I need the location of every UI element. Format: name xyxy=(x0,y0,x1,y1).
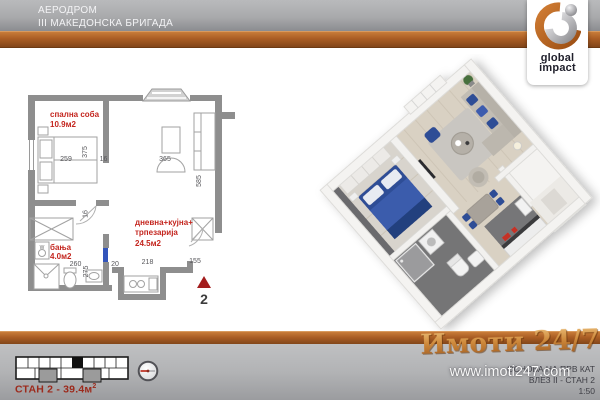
shower xyxy=(34,264,59,289)
bay-window xyxy=(143,89,190,101)
bath-door-marker xyxy=(103,248,108,262)
dim-entry-w: 155 xyxy=(189,258,201,265)
unit-label: СТАН 2 - 39.4м2 xyxy=(15,383,96,396)
imoti-watermark: Имоти 24/7 xyxy=(412,324,600,361)
bath-area: 4.0м2 xyxy=(50,252,72,261)
location-line2: III МАКЕДОНСКА БРИГАДА xyxy=(38,17,173,30)
dim-hall-t: 16 xyxy=(83,210,90,218)
dim-bedroom-w: 259 xyxy=(60,156,72,163)
dim-wall-a: 16 xyxy=(100,156,108,163)
bedroom-window xyxy=(30,140,34,170)
global-impact-logo-icon xyxy=(535,0,581,52)
dim-living-w: 365 xyxy=(159,156,171,163)
entrance-number: 2 xyxy=(200,291,208,307)
logo-card: global impact xyxy=(527,0,588,85)
unit-label-sup: 2 xyxy=(92,383,96,390)
dim-kitchen-w: 218 xyxy=(142,259,154,266)
living-name-2: трпезарија xyxy=(135,228,178,237)
orange-stripe-top xyxy=(0,31,600,48)
dim-bedroom-h: 375 xyxy=(82,146,89,158)
dim-bath-w: 260 xyxy=(70,261,82,268)
washer-label: W xyxy=(40,245,45,251)
titleblock-scale: 1:50 xyxy=(507,386,595,397)
toilet xyxy=(64,268,76,288)
wardrobe xyxy=(30,218,73,240)
compass-icon xyxy=(137,360,159,382)
building-diagram xyxy=(15,356,133,386)
website-url: www.imoti247.com xyxy=(430,364,590,380)
unit-label-text: СТАН 2 - 39.4м xyxy=(15,384,92,396)
living-name-1: дневна+кујна+ xyxy=(135,218,193,227)
highlighted-unit xyxy=(72,357,83,368)
floor-plan-2d: W спална соба 10.9м2 дневна+кујна+ т xyxy=(18,80,240,314)
sofa xyxy=(194,113,215,170)
dim-bath-door: 20 xyxy=(111,261,119,268)
location-text: АЕРОДРОМ III МАКЕДОНСКА БРИГАДА xyxy=(38,4,173,30)
dim-living-h: 585 xyxy=(196,175,203,187)
living-area: 24.5м2 xyxy=(135,239,161,248)
header-band: АЕРОДРОМ III МАКЕДОНСКА БРИГАДА xyxy=(0,0,600,31)
location-line1: АЕРОДРОМ xyxy=(38,4,173,17)
logo-wordmark: global impact xyxy=(539,53,576,73)
bedroom-name: спална соба xyxy=(50,110,100,119)
bath-name: бања xyxy=(50,243,72,252)
logo-word2: impact xyxy=(539,63,576,73)
flyer-canvas: АЕРОДРОМ III МАКЕДОНСКА БРИГАДА xyxy=(0,0,600,400)
apartment-3d xyxy=(315,54,593,330)
kitchen-counter xyxy=(124,276,158,292)
bedroom-area: 10.9м2 xyxy=(50,120,76,129)
render-3d xyxy=(278,54,600,332)
dining-table xyxy=(162,127,180,153)
dim-bath-h: 275 xyxy=(83,266,90,278)
entrance-triangle xyxy=(197,276,211,288)
